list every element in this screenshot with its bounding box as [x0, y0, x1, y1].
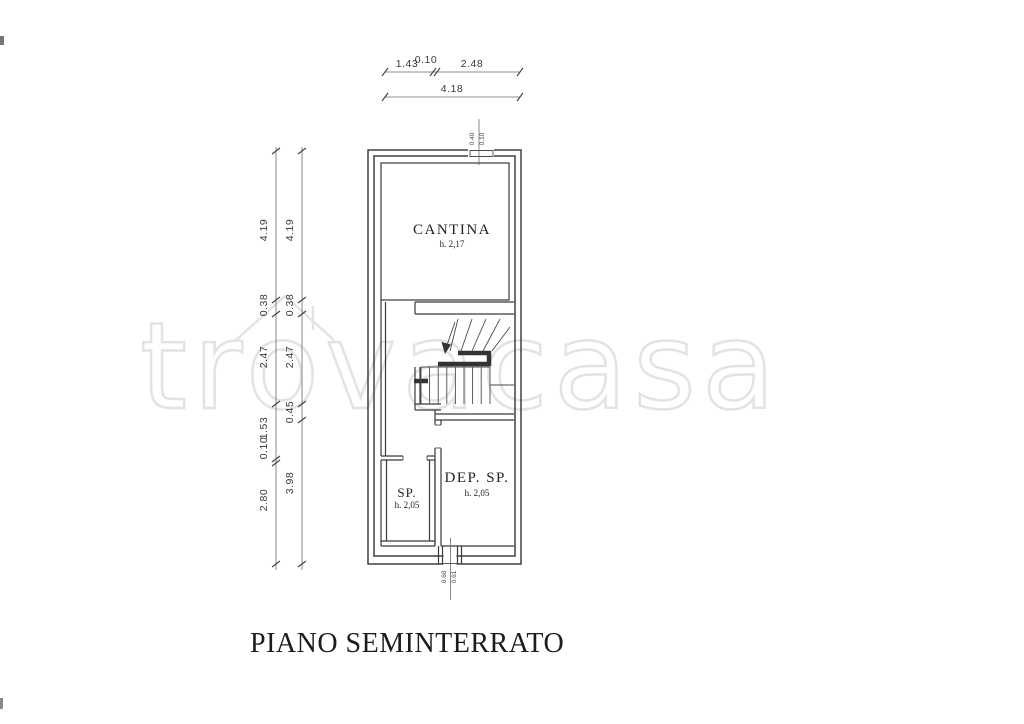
floor-plan-drawing: trovacasa 1.43 0.10 2.48 4.18 [0, 0, 1024, 724]
dim-left-inner-4: 0.45 [284, 401, 296, 423]
plan-title: PIANO SEMINTERRATO [250, 628, 564, 659]
scan-specks [0, 36, 4, 709]
top-dimension-lines: 1.43 0.10 2.48 4.18 [382, 54, 523, 101]
scanned-floor-plan-page: trovacasa 1.43 0.10 2.48 4.18 [0, 0, 1024, 724]
dim-top-total: 4.18 [441, 83, 463, 95]
room-label-cantina: CANTINA [413, 222, 491, 238]
watermark: trovacasa [140, 296, 781, 437]
dim-top-opening-2: 0.10 [479, 132, 486, 145]
room-height-dep-sp: h. 2,05 [465, 488, 490, 498]
dim-left-outer-2: 0.38 [258, 294, 270, 316]
dim-top-opening-1: 0.40 [469, 132, 476, 145]
dim-bottom-opening-1: 0.60 [441, 570, 448, 583]
dim-left-outer-6: 2.80 [258, 489, 270, 511]
room-height-cantina: h. 2,17 [440, 239, 465, 249]
dim-left-outer-3: 2.47 [258, 346, 270, 368]
dim-left-outer-1: 4.19 [258, 219, 270, 241]
room-label-dep-sp: DEP. SP. [445, 470, 510, 486]
dim-left-inner-2: 0.38 [284, 294, 296, 316]
room-label-sp: SP. [397, 485, 416, 500]
watermark-text: trovacasa [140, 298, 781, 437]
room-height-sp: h. 2,05 [395, 500, 420, 510]
dim-top-2: 0.10 [415, 54, 437, 66]
dim-bottom-opening-2: 0.61 [451, 570, 458, 583]
dim-left-outer-5: 0.10 [258, 437, 270, 459]
dim-top-3: 2.48 [461, 58, 483, 70]
dim-left-outer-4: 1.53 [258, 417, 270, 439]
dim-left-inner-5: 3.98 [284, 472, 296, 494]
dim-left-inner-1: 4.19 [284, 219, 296, 241]
dim-left-inner-3: 2.47 [284, 346, 296, 368]
